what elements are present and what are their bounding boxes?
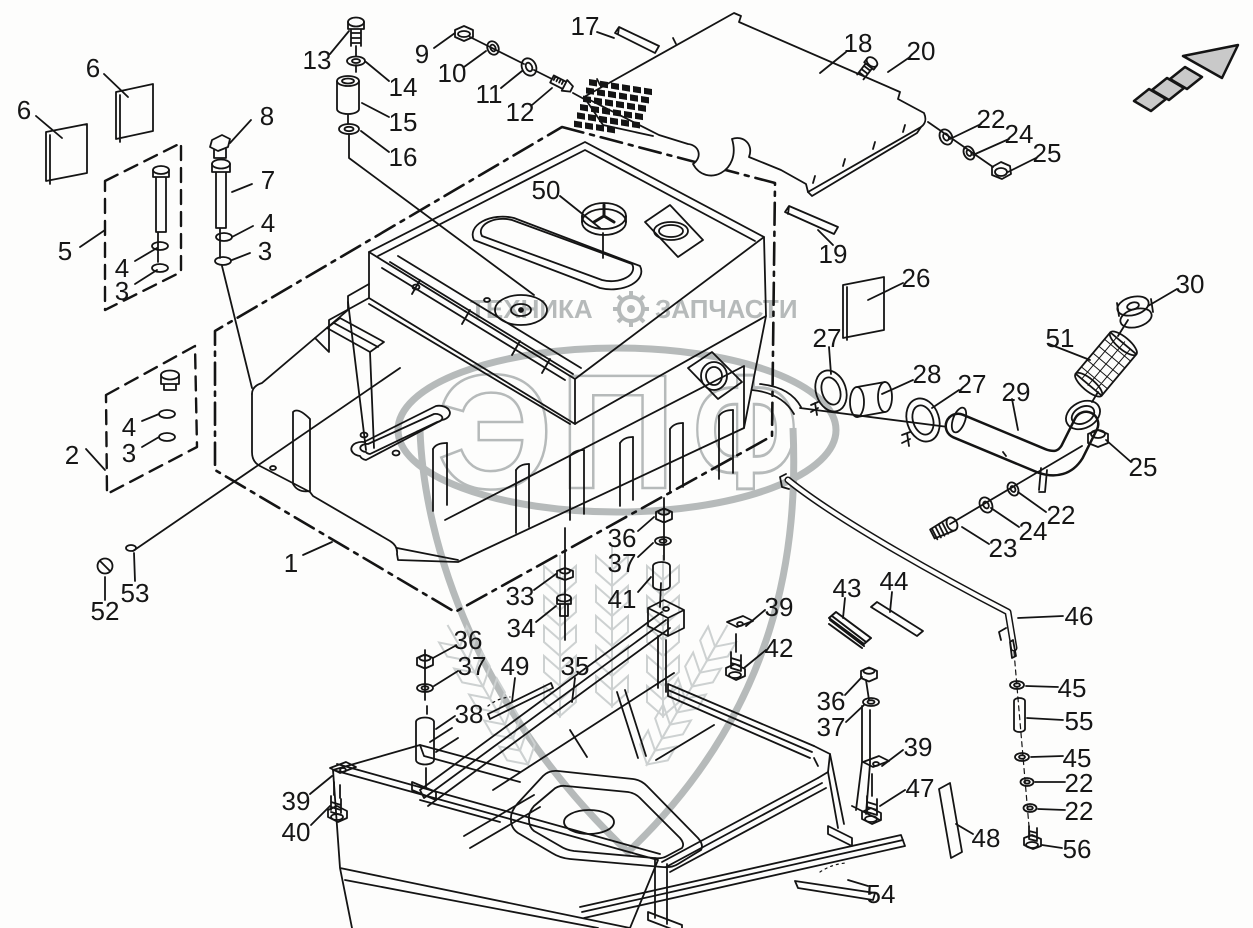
svg-text:24: 24 [1005, 119, 1034, 149]
svg-text:22: 22 [1047, 500, 1076, 530]
svg-text:39: 39 [282, 786, 311, 816]
svg-text:54: 54 [867, 879, 896, 909]
svg-text:52: 52 [91, 596, 120, 626]
svg-text:2: 2 [65, 440, 79, 470]
svg-text:20: 20 [907, 36, 936, 66]
svg-text:42: 42 [765, 633, 794, 663]
svg-text:50: 50 [532, 175, 561, 205]
svg-text:23: 23 [989, 533, 1018, 563]
svg-text:22: 22 [1065, 768, 1094, 798]
svg-text:49: 49 [501, 651, 530, 681]
svg-text:25: 25 [1129, 452, 1158, 482]
svg-text:1: 1 [284, 548, 298, 578]
svg-text:30: 30 [1176, 269, 1205, 299]
svg-text:6: 6 [86, 53, 100, 83]
svg-text:9: 9 [415, 39, 429, 69]
svg-text:43: 43 [833, 573, 862, 603]
svg-text:8: 8 [260, 101, 274, 131]
svg-text:39: 39 [904, 732, 933, 762]
svg-text:28: 28 [913, 359, 942, 389]
svg-text:29: 29 [1002, 377, 1031, 407]
svg-text:37: 37 [458, 651, 487, 681]
svg-text:22: 22 [1065, 796, 1094, 826]
svg-text:25: 25 [1033, 138, 1062, 168]
svg-text:44: 44 [880, 566, 909, 596]
svg-text:55: 55 [1065, 706, 1094, 736]
svg-text:34: 34 [507, 613, 536, 643]
svg-text:11: 11 [476, 79, 503, 109]
svg-text:ЗАПЧАСТИ: ЗАПЧАСТИ [655, 294, 798, 324]
svg-text:33: 33 [506, 581, 535, 611]
svg-text:4: 4 [261, 208, 275, 238]
svg-text:17: 17 [571, 11, 600, 41]
svg-text:18: 18 [844, 28, 873, 58]
svg-text:6: 6 [17, 95, 31, 125]
svg-text:41: 41 [608, 584, 637, 614]
svg-text:15: 15 [389, 107, 418, 137]
svg-text:37: 37 [608, 548, 637, 578]
svg-text:14: 14 [389, 72, 418, 102]
svg-text:35: 35 [561, 651, 590, 681]
svg-text:19: 19 [819, 239, 848, 269]
svg-text:3: 3 [122, 438, 136, 468]
svg-text:27: 27 [958, 369, 987, 399]
svg-text:12: 12 [506, 97, 535, 127]
svg-text:26: 26 [902, 263, 931, 293]
svg-text:46: 46 [1065, 601, 1094, 631]
svg-text:51: 51 [1046, 323, 1075, 353]
svg-text:10: 10 [438, 58, 467, 88]
svg-text:Ф: Ф [693, 340, 798, 523]
svg-text:3: 3 [115, 276, 129, 306]
svg-text:27: 27 [813, 323, 842, 353]
svg-text:40: 40 [282, 817, 311, 847]
svg-text:53: 53 [121, 578, 150, 608]
svg-text:3: 3 [258, 236, 272, 266]
svg-text:22: 22 [977, 104, 1006, 134]
svg-text:24: 24 [1019, 516, 1048, 546]
svg-text:48: 48 [972, 823, 1001, 853]
svg-text:5: 5 [58, 236, 72, 266]
svg-text:37: 37 [817, 712, 846, 742]
svg-text:7: 7 [261, 165, 275, 195]
svg-text:56: 56 [1063, 834, 1092, 864]
svg-text:13: 13 [303, 45, 332, 75]
svg-text:16: 16 [389, 142, 418, 172]
svg-text:38: 38 [455, 699, 484, 729]
svg-text:45: 45 [1058, 673, 1087, 703]
svg-text:39: 39 [765, 592, 794, 622]
svg-text:47: 47 [906, 773, 935, 803]
